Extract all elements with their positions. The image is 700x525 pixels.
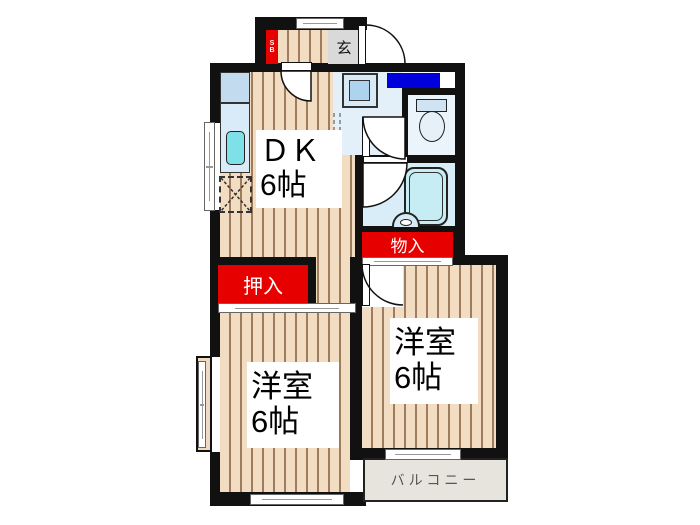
monoire-sliding-door [362,257,453,266]
kitchen-counter-top [220,72,250,103]
oshiire-sliding-door [218,303,356,313]
washing-machine [349,80,370,101]
closet-oshiire-label: 押入 [243,270,283,299]
refrigerator-space [219,176,252,213]
dk-size: 6帖 [260,169,338,203]
bedroom-left-bottom-window [250,494,344,505]
wall-toilet-top [402,88,465,95]
entrance-door-leaf [358,25,366,65]
wall-storage-left [355,226,362,257]
bedroom-right-size: 6帖 [394,361,474,396]
dk-name: ＤＫ [260,135,338,169]
bathroom-door-leaf [363,156,408,163]
vanity-counter-blue [387,73,440,88]
wall-left-upper [210,63,220,123]
bedroom-right-name: 洋室 [394,326,474,361]
entrance-door-arc [366,25,405,64]
bathroom-sink-bowl [400,219,412,226]
dk-label: ＤＫ 6帖 [256,130,342,208]
closet-oshiire: 押入 [218,265,308,303]
balcony-window [385,449,461,460]
bedroom-left-size: 6帖 [251,405,335,440]
bedroom-right-door-leaf [362,264,370,306]
bedroom-left-name: 洋室 [251,370,335,405]
bay-window-glass [198,361,206,448]
closet-monoire: 物入 [362,232,453,257]
wall-bath-left [355,163,363,232]
wall-oshiire-top [210,257,316,265]
entrance-window [296,18,344,29]
closet-monoire-label: 物入 [391,232,425,257]
shoe-box-label: SB [269,40,276,54]
wall-main-top [210,63,465,72]
genkan-label: 玄 [336,37,351,58]
toilet-bowl [419,111,445,142]
entrance-hall-floor [278,30,328,64]
genkan-area: 玄 [328,30,360,64]
kitchen-sink [226,131,245,165]
bedroom-right-label: 洋室 6帖 [390,318,478,404]
washroom-door-leaf [362,117,370,159]
wall-toilet-left [402,88,408,155]
shoe-box: SB [266,30,278,64]
floor-plan: SB 玄 押入 物入 バルコニー [0,0,700,525]
bedroom-left-label: 洋室 6帖 [247,362,339,448]
balcony-label: バルコニー [391,470,481,490]
wall-bedroom-right-side [496,255,508,460]
kitchen-wall-window [204,122,215,211]
wall-between-bedrooms [350,257,362,460]
dk-door-leaf [281,62,312,71]
balcony: バルコニー [363,458,508,502]
